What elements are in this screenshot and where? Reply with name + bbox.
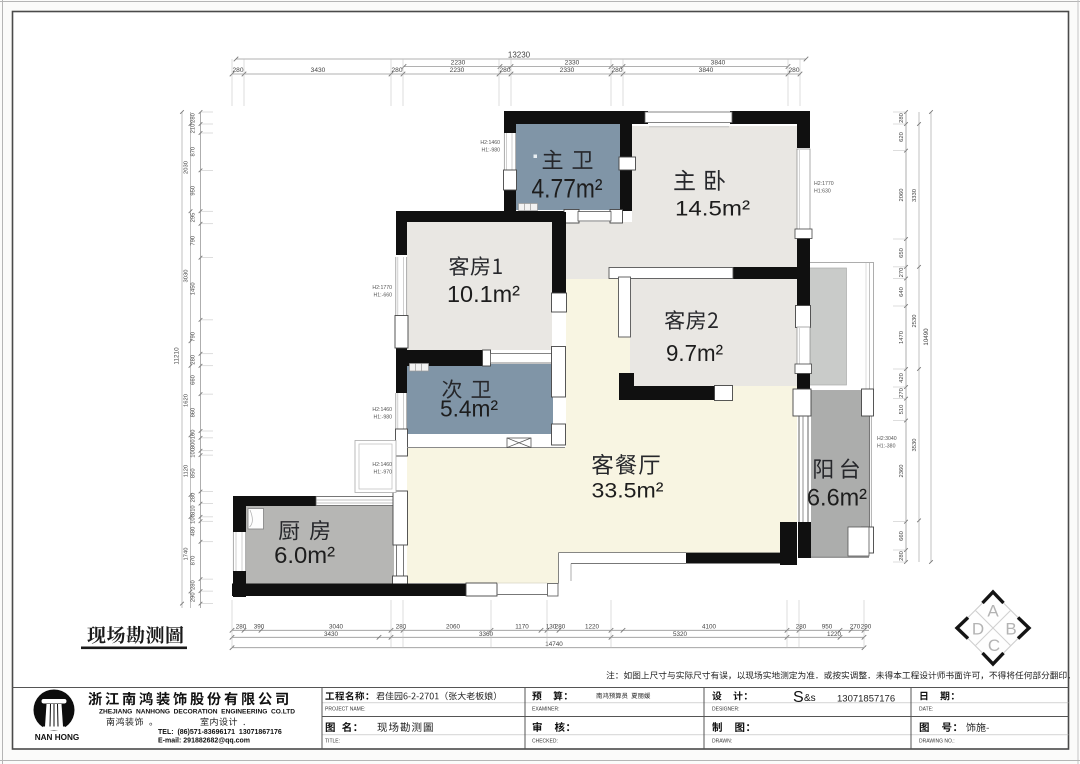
- svg-text:270: 270: [850, 624, 861, 631]
- svg-text:TEL: (86)571-83696171 130718: TEL: (86)571-83696171 13071867176: [158, 729, 282, 736]
- svg-text:3840: 3840: [711, 60, 726, 67]
- svg-text:280: 280: [788, 67, 799, 74]
- svg-text:640: 640: [899, 287, 905, 297]
- svg-text:2360: 2360: [899, 465, 905, 478]
- svg-text:290: 290: [861, 624, 872, 631]
- svg-text:CHECKED:: CHECKED:: [532, 739, 558, 745]
- svg-text:390: 390: [254, 624, 265, 631]
- svg-text:3840: 3840: [699, 67, 714, 74]
- svg-text:870: 870: [191, 147, 197, 157]
- svg-text:870: 870: [191, 556, 197, 566]
- svg-text:9.7m²: 9.7m²: [666, 340, 723, 366]
- svg-text:2230: 2230: [450, 67, 465, 74]
- svg-text:DATE:: DATE:: [919, 707, 933, 713]
- svg-text:1220: 1220: [585, 624, 600, 631]
- svg-text:270: 270: [899, 268, 905, 278]
- svg-text:14740: 14740: [545, 641, 563, 648]
- svg-text:280: 280: [191, 113, 197, 123]
- svg-text:2030: 2030: [184, 161, 190, 174]
- svg-text:2330: 2330: [560, 67, 575, 74]
- svg-text:B: B: [1005, 620, 1016, 639]
- svg-text:H2:3040: H2:3040: [877, 436, 897, 442]
- svg-text:H1:-980: H1:-980: [482, 148, 501, 154]
- svg-text:13230: 13230: [508, 51, 531, 60]
- svg-text:3330: 3330: [912, 189, 918, 202]
- svg-text:14.5m²: 14.5m²: [675, 197, 750, 221]
- svg-text:2330: 2330: [565, 60, 580, 67]
- svg-text:H1:-380: H1:-380: [877, 444, 896, 450]
- svg-text:280: 280: [899, 551, 905, 561]
- svg-text:3030: 3030: [184, 270, 190, 283]
- svg-text:1620: 1620: [184, 394, 190, 407]
- svg-text:6.6m²: 6.6m²: [807, 485, 867, 512]
- svg-text:2060: 2060: [899, 189, 905, 202]
- svg-text:3430: 3430: [324, 631, 339, 638]
- svg-text:S: S: [793, 689, 804, 706]
- svg-text:660: 660: [191, 375, 197, 385]
- svg-text:2530: 2530: [912, 315, 918, 328]
- svg-text:D: D: [972, 620, 984, 639]
- svg-text:420: 420: [899, 373, 905, 383]
- svg-text:2060: 2060: [446, 624, 461, 631]
- svg-text:2230: 2230: [451, 60, 466, 67]
- svg-text:650: 650: [899, 248, 905, 258]
- svg-text:5320: 5320: [673, 631, 688, 638]
- svg-text:295: 295: [191, 213, 197, 223]
- svg-text:280: 280: [796, 624, 807, 631]
- svg-text:280: 280: [191, 580, 197, 590]
- svg-text:280: 280: [899, 113, 905, 123]
- svg-text:860: 860: [191, 408, 197, 418]
- svg-text:1220: 1220: [827, 631, 842, 638]
- svg-text:620: 620: [899, 132, 905, 142]
- svg-text:H2:1770: H2:1770: [372, 285, 392, 291]
- svg-text:H1:630: H1:630: [814, 189, 831, 195]
- svg-text:DESIGNER:: DESIGNER:: [712, 707, 740, 713]
- svg-text:1450: 1450: [191, 282, 197, 295]
- svg-text:1170: 1170: [515, 624, 529, 631]
- svg-text:210: 210: [191, 124, 197, 134]
- svg-text:ZHEJIANG NANHONG DECORATION: ZHEJIANG NANHONG DECORATION ENGINEERING …: [99, 709, 295, 716]
- svg-text:100: 100: [191, 448, 197, 458]
- svg-text:510: 510: [899, 405, 905, 415]
- svg-text:280: 280: [236, 624, 247, 631]
- svg-text:H2:1460: H2:1460: [372, 462, 392, 468]
- svg-text:280: 280: [396, 624, 407, 631]
- svg-text:10490: 10490: [923, 328, 930, 346]
- svg-text:310: 310: [191, 505, 197, 515]
- svg-text:H2:1460: H2:1460: [372, 407, 392, 413]
- svg-text:DRAWN:: DRAWN:: [712, 739, 732, 745]
- svg-text:NAN HONG: NAN HONG: [35, 733, 80, 742]
- svg-text:4100: 4100: [702, 624, 717, 631]
- svg-text:480: 480: [191, 527, 197, 537]
- svg-text:33.5m²: 33.5m²: [592, 479, 664, 503]
- svg-text:3040: 3040: [329, 624, 344, 631]
- svg-text:950: 950: [191, 186, 197, 196]
- svg-text:H1:-980: H1:-980: [374, 415, 393, 421]
- svg-text:290: 290: [191, 592, 197, 602]
- svg-text:PROJECT NAME:: PROJECT NAME:: [325, 707, 366, 713]
- svg-text:H1:-970: H1:-970: [374, 470, 393, 476]
- svg-text:5.4m²: 5.4m²: [440, 396, 498, 422]
- svg-text:C: C: [988, 636, 1000, 655]
- svg-text:790: 790: [191, 236, 197, 246]
- svg-text:H1:-660: H1:-660: [374, 293, 393, 299]
- svg-text:280: 280: [555, 624, 566, 631]
- svg-text:E-mail: 291882682@qq.com: E-mail: 291882682@qq.com: [158, 738, 250, 745]
- svg-text:10.1m²: 10.1m²: [447, 281, 520, 307]
- svg-text:660: 660: [899, 531, 905, 541]
- svg-text:1740: 1740: [184, 548, 190, 561]
- svg-text:DRAWING NO.:: DRAWING NO.:: [919, 739, 955, 745]
- svg-text:TITLE:: TITLE:: [325, 739, 340, 745]
- svg-text:3360: 3360: [479, 631, 494, 638]
- svg-text:300: 300: [191, 439, 197, 449]
- svg-text:H2:1770: H2:1770: [814, 181, 834, 187]
- svg-text:A: A: [987, 602, 999, 621]
- svg-text:1120: 1120: [184, 465, 190, 477]
- svg-text:13071857176: 13071857176: [837, 694, 895, 705]
- svg-text:280: 280: [191, 355, 197, 365]
- svg-text:H2:1460: H2:1460: [480, 140, 500, 146]
- svg-text:280: 280: [611, 67, 622, 74]
- svg-text:280: 280: [391, 67, 402, 74]
- svg-text:4.77m²: 4.77m²: [532, 174, 603, 204]
- svg-text:1470: 1470: [899, 331, 905, 344]
- svg-text:EXAMINER:: EXAMINER:: [532, 707, 560, 713]
- svg-text:280: 280: [232, 67, 243, 74]
- svg-text:6.0m²: 6.0m²: [274, 542, 335, 568]
- svg-text:&s: &s: [804, 693, 816, 704]
- svg-text:3530: 3530: [912, 439, 918, 452]
- svg-text:270: 270: [899, 388, 905, 398]
- svg-text:950: 950: [822, 624, 833, 631]
- svg-text:280: 280: [499, 67, 510, 74]
- svg-text:11210: 11210: [174, 347, 181, 365]
- svg-text:850: 850: [191, 468, 197, 478]
- svg-text:3430: 3430: [311, 67, 326, 74]
